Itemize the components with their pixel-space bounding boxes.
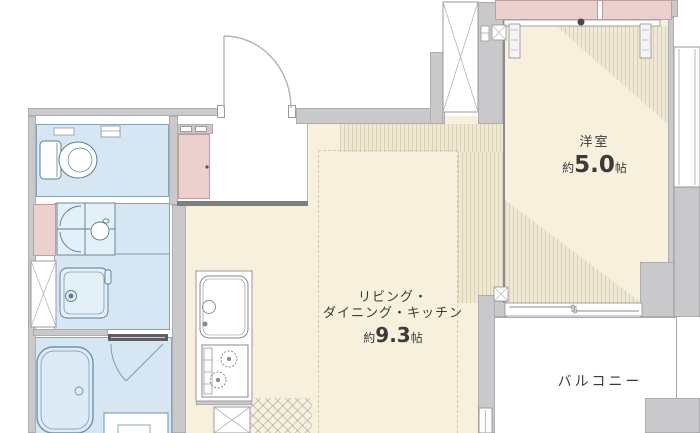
- window-right: [674, 47, 700, 187]
- bathtub: [37, 347, 93, 433]
- door-stopper: [578, 19, 585, 26]
- ldk-line2: ダイニング・キッチン: [307, 306, 479, 322]
- washbasin-vanity: [57, 203, 115, 255]
- column-marker: [492, 25, 506, 40]
- bath-door: [111, 344, 163, 381]
- column-marker: [494, 287, 508, 301]
- balcony-label: バルコニー: [530, 374, 670, 392]
- ldk-label: リビング・ ダイニング・キッチン 約9.3帖: [307, 290, 479, 348]
- western-room-label: 洋室 約5.0帖: [522, 135, 667, 180]
- sliding-window-balcony: [505, 303, 642, 316]
- bath-counter: [104, 413, 168, 433]
- refrigerator-space: [214, 407, 250, 433]
- fixture-layer: [0, 0, 700, 433]
- closet-door-stub-right: [640, 24, 651, 58]
- balcony-access-window: [479, 408, 492, 433]
- closet-door-stub-left: [509, 24, 520, 58]
- kitchen-counter: [196, 271, 252, 401]
- western-room-size: 約5.0帖: [522, 151, 667, 180]
- intercom-box: [481, 26, 489, 41]
- shoe-cabinet-knob: [205, 165, 208, 168]
- meter-box: [443, 2, 478, 112]
- toilet: [40, 141, 97, 179]
- washstand: [60, 268, 111, 318]
- floor-plan: 洋室 約5.0帖 リビング・ ダイニング・キッチン 約9.3帖 バルコニー: [0, 0, 700, 433]
- toilet-remote: [54, 128, 74, 135]
- washing-machine-space: [31, 261, 56, 327]
- toilet-shelf: [101, 126, 120, 137]
- ldk-line1: リビング・: [307, 290, 479, 306]
- western-room-name: 洋室: [522, 135, 667, 151]
- bath-door-bar: [108, 334, 168, 341]
- entrance-door: [224, 36, 291, 108]
- closet-sliding-track: [504, 19, 660, 27]
- ldk-size: 約9.3帖: [307, 323, 479, 348]
